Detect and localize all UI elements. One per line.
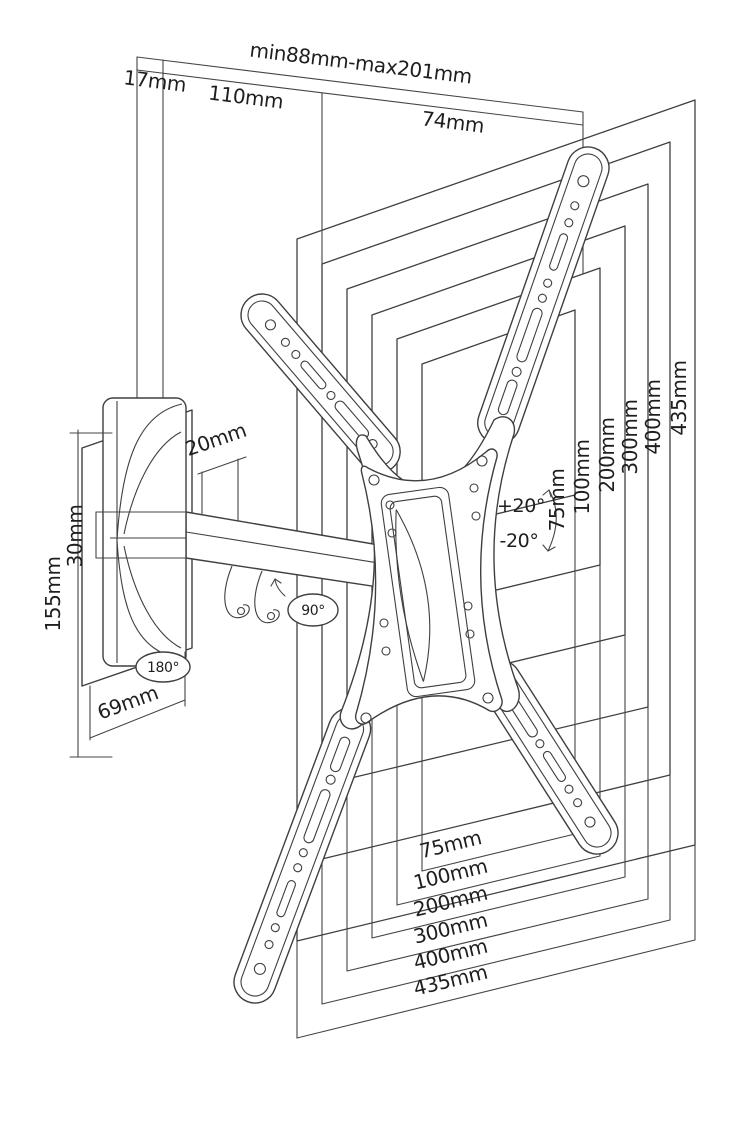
adapter-plate [356, 449, 502, 724]
tilt-up-label: +20° [497, 495, 545, 517]
mount-arm [186, 512, 385, 588]
tv-mount-dimension-drawing: 17mm 110mm min88mm-max201mm 74mm 155mm 3… [0, 0, 750, 1126]
vesa-height-435: 435mm [667, 360, 691, 435]
vesa-height-300: 300mm [618, 399, 642, 474]
cable-hooks [225, 566, 279, 623]
dim-label-17mm: 17mm [122, 65, 187, 96]
dim-label-110mm: 110mm [207, 81, 285, 114]
wall-plate [103, 398, 186, 666]
dim-label-74mm: 74mm [420, 106, 485, 137]
mount-diagram: 17mm 110mm min88mm-max201mm 74mm 155mm 3… [0, 0, 750, 1126]
vesa-height-200: 200mm [595, 417, 619, 492]
vesa-width-rails [297, 834, 695, 1038]
dim-label-extension: min88mm-max201mm [248, 38, 473, 89]
dim-label-155mm: 155mm [41, 556, 65, 631]
swivel-angle-label: 180° [147, 660, 179, 676]
vesa-height-400: 400mm [641, 379, 665, 454]
bracket-arm-lower-left [228, 702, 377, 1009]
dim-label-30mm: 30mm [63, 505, 87, 568]
pivot-angle-label: 90° [301, 603, 325, 619]
bracket-arm-upper-left [232, 285, 408, 481]
dim-label-69mm: 69mm [94, 680, 161, 724]
tilt-down-label: -20° [500, 530, 539, 552]
bracket-arm-upper-right [472, 141, 615, 449]
vesa-height-75: 75mm [545, 469, 569, 532]
vesa-height-100: 100mm [570, 439, 594, 514]
